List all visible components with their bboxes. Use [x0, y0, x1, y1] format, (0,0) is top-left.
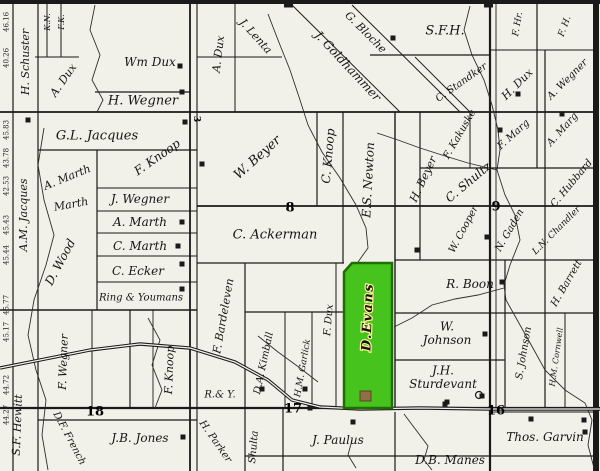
parcel-label: H. Schuster — [19, 28, 32, 96]
margin-acreage-number: 45.17 — [2, 322, 10, 342]
building-marker — [200, 162, 205, 167]
margin-acreage-number: 46.16 — [2, 11, 10, 32]
parcel-label: K.N. — [43, 13, 52, 32]
building-marker — [180, 262, 185, 267]
parcel-label: C. Ecker — [112, 264, 165, 278]
parcel-label: D.B. Manes — [414, 453, 485, 467]
margin-acreage-number: 44.27 — [2, 405, 10, 425]
building-marker — [582, 418, 587, 423]
margin-acreage-number: 43.78 — [2, 148, 10, 168]
parcel-label: S.F.H. — [425, 24, 464, 39]
parcel-label: J. Paulus — [309, 433, 364, 447]
parcel-label: C. Ackerman — [233, 228, 318, 243]
section-corner-marker — [484, 0, 493, 8]
parcel-label: G.L. Jacques — [56, 129, 139, 144]
parcel-label: S.F. Hewitt — [10, 394, 25, 456]
parcel-label: J. Wegner — [108, 192, 170, 206]
parcel-label: A. Marth — [112, 215, 167, 229]
highlighted-parcel-label: D.Evans — [359, 283, 376, 353]
building-marker — [560, 112, 565, 117]
building-marker — [351, 420, 356, 425]
margin-acreage-number: 42.53 — [2, 176, 10, 196]
parcel-label: Ring & Youmans — [98, 293, 183, 304]
building-marker — [445, 400, 450, 405]
parcel-label: C. Marth — [113, 239, 167, 253]
section-number: 9 — [491, 200, 500, 215]
margin-acreage-number: 44.72 — [2, 375, 10, 395]
building-marker — [180, 220, 185, 225]
parcel-label: F.K. — [57, 14, 66, 30]
building-marker — [308, 406, 313, 411]
building-marker — [529, 417, 534, 422]
building-marker — [498, 128, 503, 133]
section-number: 8 — [285, 201, 294, 216]
section-number: 18 — [86, 405, 104, 420]
building-marker — [391, 36, 396, 41]
margin-acreage-number: 45.77 — [2, 295, 10, 315]
building-marker — [178, 64, 183, 69]
margin-acreage-number: 45.43 — [2, 215, 10, 235]
margin-acreage-number: 45.44 — [2, 244, 10, 265]
parcel-label: F. Wegner — [56, 333, 71, 391]
section-corner-marker — [284, 0, 293, 8]
building-marker — [500, 280, 505, 285]
parcel-label: F. Knoop — [162, 346, 177, 396]
margin-acreage-number: 40.26 — [2, 47, 10, 68]
section-number: 17 — [284, 402, 302, 417]
building-marker — [180, 90, 185, 95]
building-marker — [181, 435, 186, 440]
parcel-label: Thos. Garvin — [506, 430, 584, 444]
building-marker — [176, 244, 181, 249]
plat-map: K.N.F.K.H. SchusterA.M. JacquesA. DuxWm … — [0, 0, 600, 471]
plat-map-image: K.N.F.K.H. SchusterA.M. JacquesA. DuxWm … — [0, 0, 600, 471]
parcel-label: R.& Y. — [203, 390, 235, 401]
section-number: 16 — [487, 404, 505, 419]
highlighted-parcel-building — [360, 391, 371, 401]
building-marker — [415, 248, 420, 253]
parcel-label: Wm Dux — [124, 55, 176, 69]
building-marker — [485, 235, 490, 240]
building-marker — [180, 287, 185, 292]
building-marker — [26, 118, 31, 123]
building-marker — [483, 332, 488, 337]
parcel-label: H. Wegner — [107, 94, 179, 109]
section-number: 3 — [191, 116, 201, 122]
parcel-label: J.B. Jones — [108, 431, 168, 445]
building-marker — [183, 120, 188, 125]
parcel-label: A.M. Jacques — [17, 178, 30, 252]
parcel-label: R. Boon — [445, 277, 494, 291]
margin-acreage-number: 45.83 — [2, 120, 10, 140]
